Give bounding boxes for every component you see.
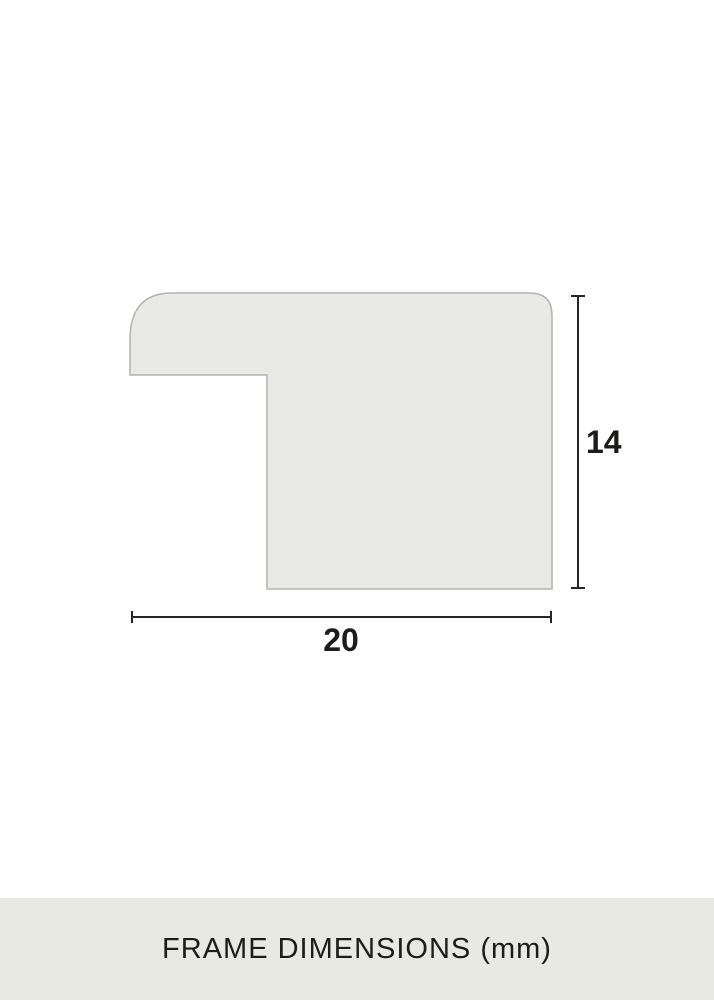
- frame-profile-diagram: [0, 0, 714, 1000]
- height-dimension-line: [571, 296, 585, 588]
- frame-profile-shape: [130, 293, 552, 589]
- footer-bar: FRAME DIMENSIONS (mm): [0, 898, 714, 1000]
- footer-caption: FRAME DIMENSIONS (mm): [162, 933, 552, 966]
- width-dimension-value: 20: [291, 622, 391, 658]
- frame-dimensions-page: 14 20 FRAME DIMENSIONS (mm): [0, 0, 714, 1000]
- height-dimension-value: 14: [586, 424, 622, 460]
